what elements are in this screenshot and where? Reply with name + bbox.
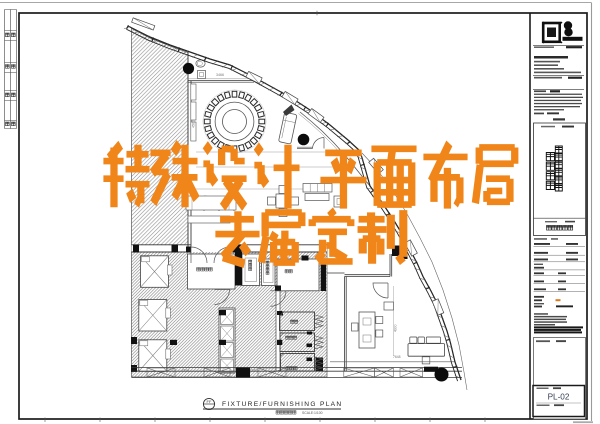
svg-text:3466: 3466 (216, 73, 224, 77)
svg-text:2x14: 2x14 (182, 368, 189, 372)
svg-text:FIXTURE/FURNISHING PLAN: FIXTURE/FURNISHING PLAN (222, 401, 342, 408)
svg-text:7648: 7648 (393, 355, 401, 359)
svg-text:FF: FF (207, 399, 212, 404)
svg-text:4300: 4300 (394, 324, 398, 332)
svg-text:SCALE:1/100: SCALE:1/100 (302, 411, 323, 415)
svg-text:PL-02: PL-02 (548, 392, 570, 401)
svg-text:2x3G: 2x3G (250, 368, 258, 372)
svg-text:4500: 4500 (192, 120, 196, 128)
